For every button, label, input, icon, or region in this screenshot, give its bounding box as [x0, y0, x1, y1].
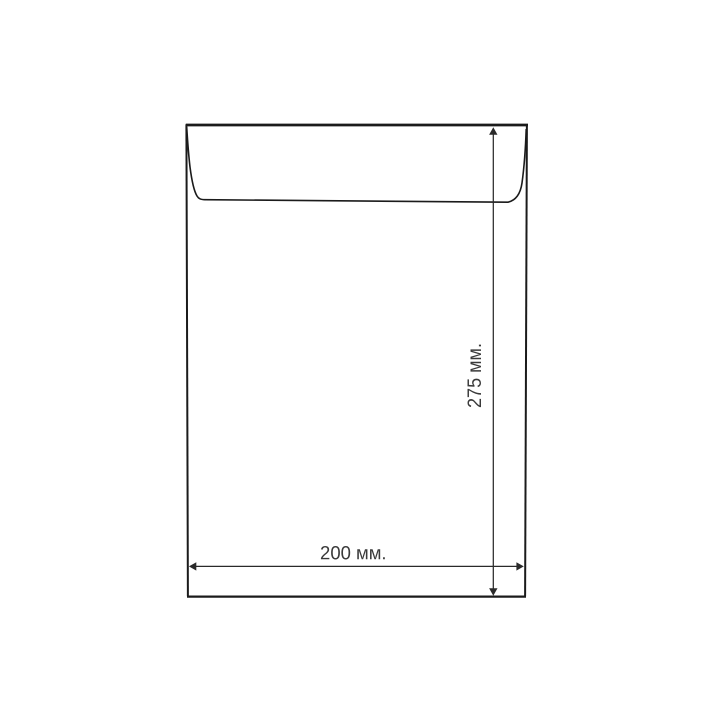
svg-text:275 мм.: 275 мм. [465, 343, 486, 408]
svg-text:200 мм.: 200 мм. [320, 543, 387, 564]
